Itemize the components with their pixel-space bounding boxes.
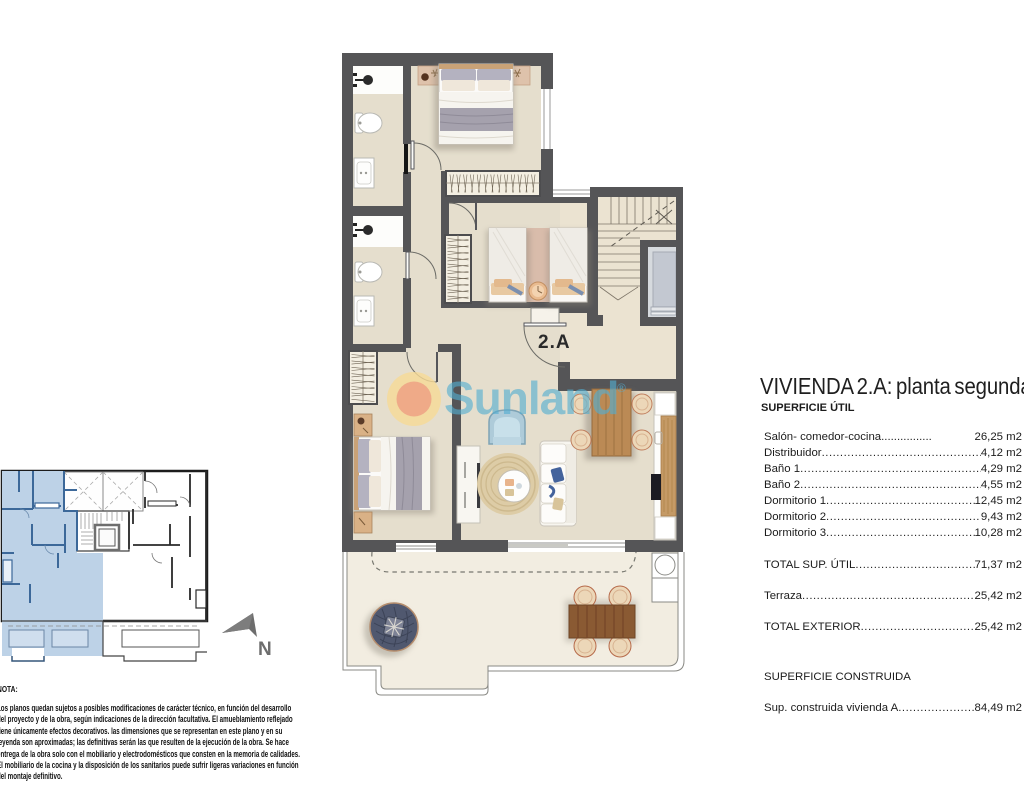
svg-text:®: ®: [617, 381, 626, 395]
svg-text:Sunland: Sunland: [444, 372, 618, 424]
svg-text:N: N: [258, 639, 272, 660]
